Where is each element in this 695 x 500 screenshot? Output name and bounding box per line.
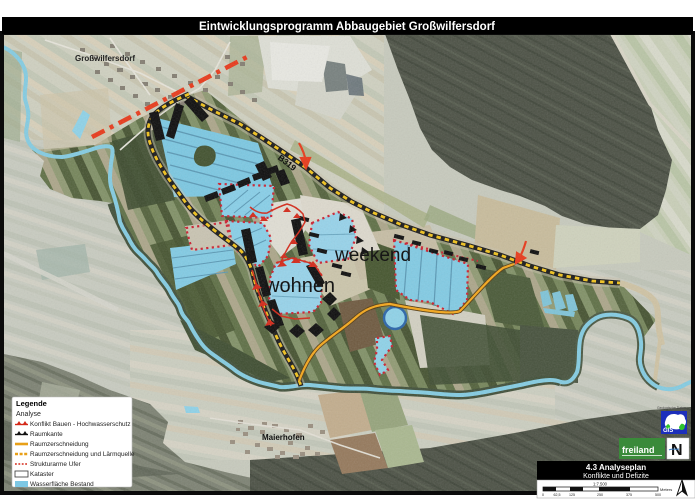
svg-text:Konflikte und Defizite: Konflikte und Defizite <box>583 473 649 480</box>
svg-text:4.3 Analyseplan: 4.3 Analyseplan <box>586 463 646 472</box>
svg-text:Eintwicklungsprogramm Abbaugeb: Eintwicklungsprogramm Abbaugebiet Großwi… <box>199 21 495 33</box>
svg-text:Analyse: Analyse <box>16 411 41 418</box>
svg-text:freiland: freiland <box>622 445 655 455</box>
svg-text:GIS: GIS <box>663 428 673 434</box>
svg-text:0: 0 <box>542 493 544 497</box>
svg-text:Kataster: Kataster <box>30 471 55 478</box>
svg-text:Großwilfersdorf: Großwilfersdorf <box>75 54 135 63</box>
svg-text:125: 125 <box>569 493 575 497</box>
svg-text:Strukturarme Ufer: Strukturarme Ufer <box>30 461 82 468</box>
svg-text:Maierhofen: Maierhofen <box>262 433 305 442</box>
svg-text:1:7.500: 1:7.500 <box>593 482 608 487</box>
svg-text:N: N <box>671 442 683 459</box>
svg-text:weekend: weekend <box>334 245 411 266</box>
svg-text:Raumkante: Raumkante <box>30 431 63 438</box>
svg-text:Konflikt Bauen - Hochwassersch: Konflikt Bauen - Hochwasserschutz <box>30 421 131 428</box>
svg-text:500: 500 <box>655 493 661 497</box>
svg-text:Raumzerschneidung: Raumzerschneidung <box>30 441 89 448</box>
svg-text:Wasserfläche Bestand: Wasserfläche Bestand <box>30 481 94 488</box>
svg-text:250: 250 <box>597 493 603 497</box>
svg-text:Auftragnehmer: Auftragnehmer <box>620 433 642 437</box>
svg-text:Raumzerschneidung und Lärmquel: Raumzerschneidung und Lärmquelle <box>30 451 135 458</box>
svg-text:Legende: Legende <box>16 399 47 408</box>
svg-text:Meters: Meters <box>660 487 672 492</box>
svg-text:Geologische Daten: Geologische Daten <box>657 406 686 410</box>
svg-text:wohnen: wohnen <box>264 275 335 297</box>
svg-text:375: 375 <box>626 493 632 497</box>
svg-text:62,5: 62,5 <box>554 493 561 497</box>
